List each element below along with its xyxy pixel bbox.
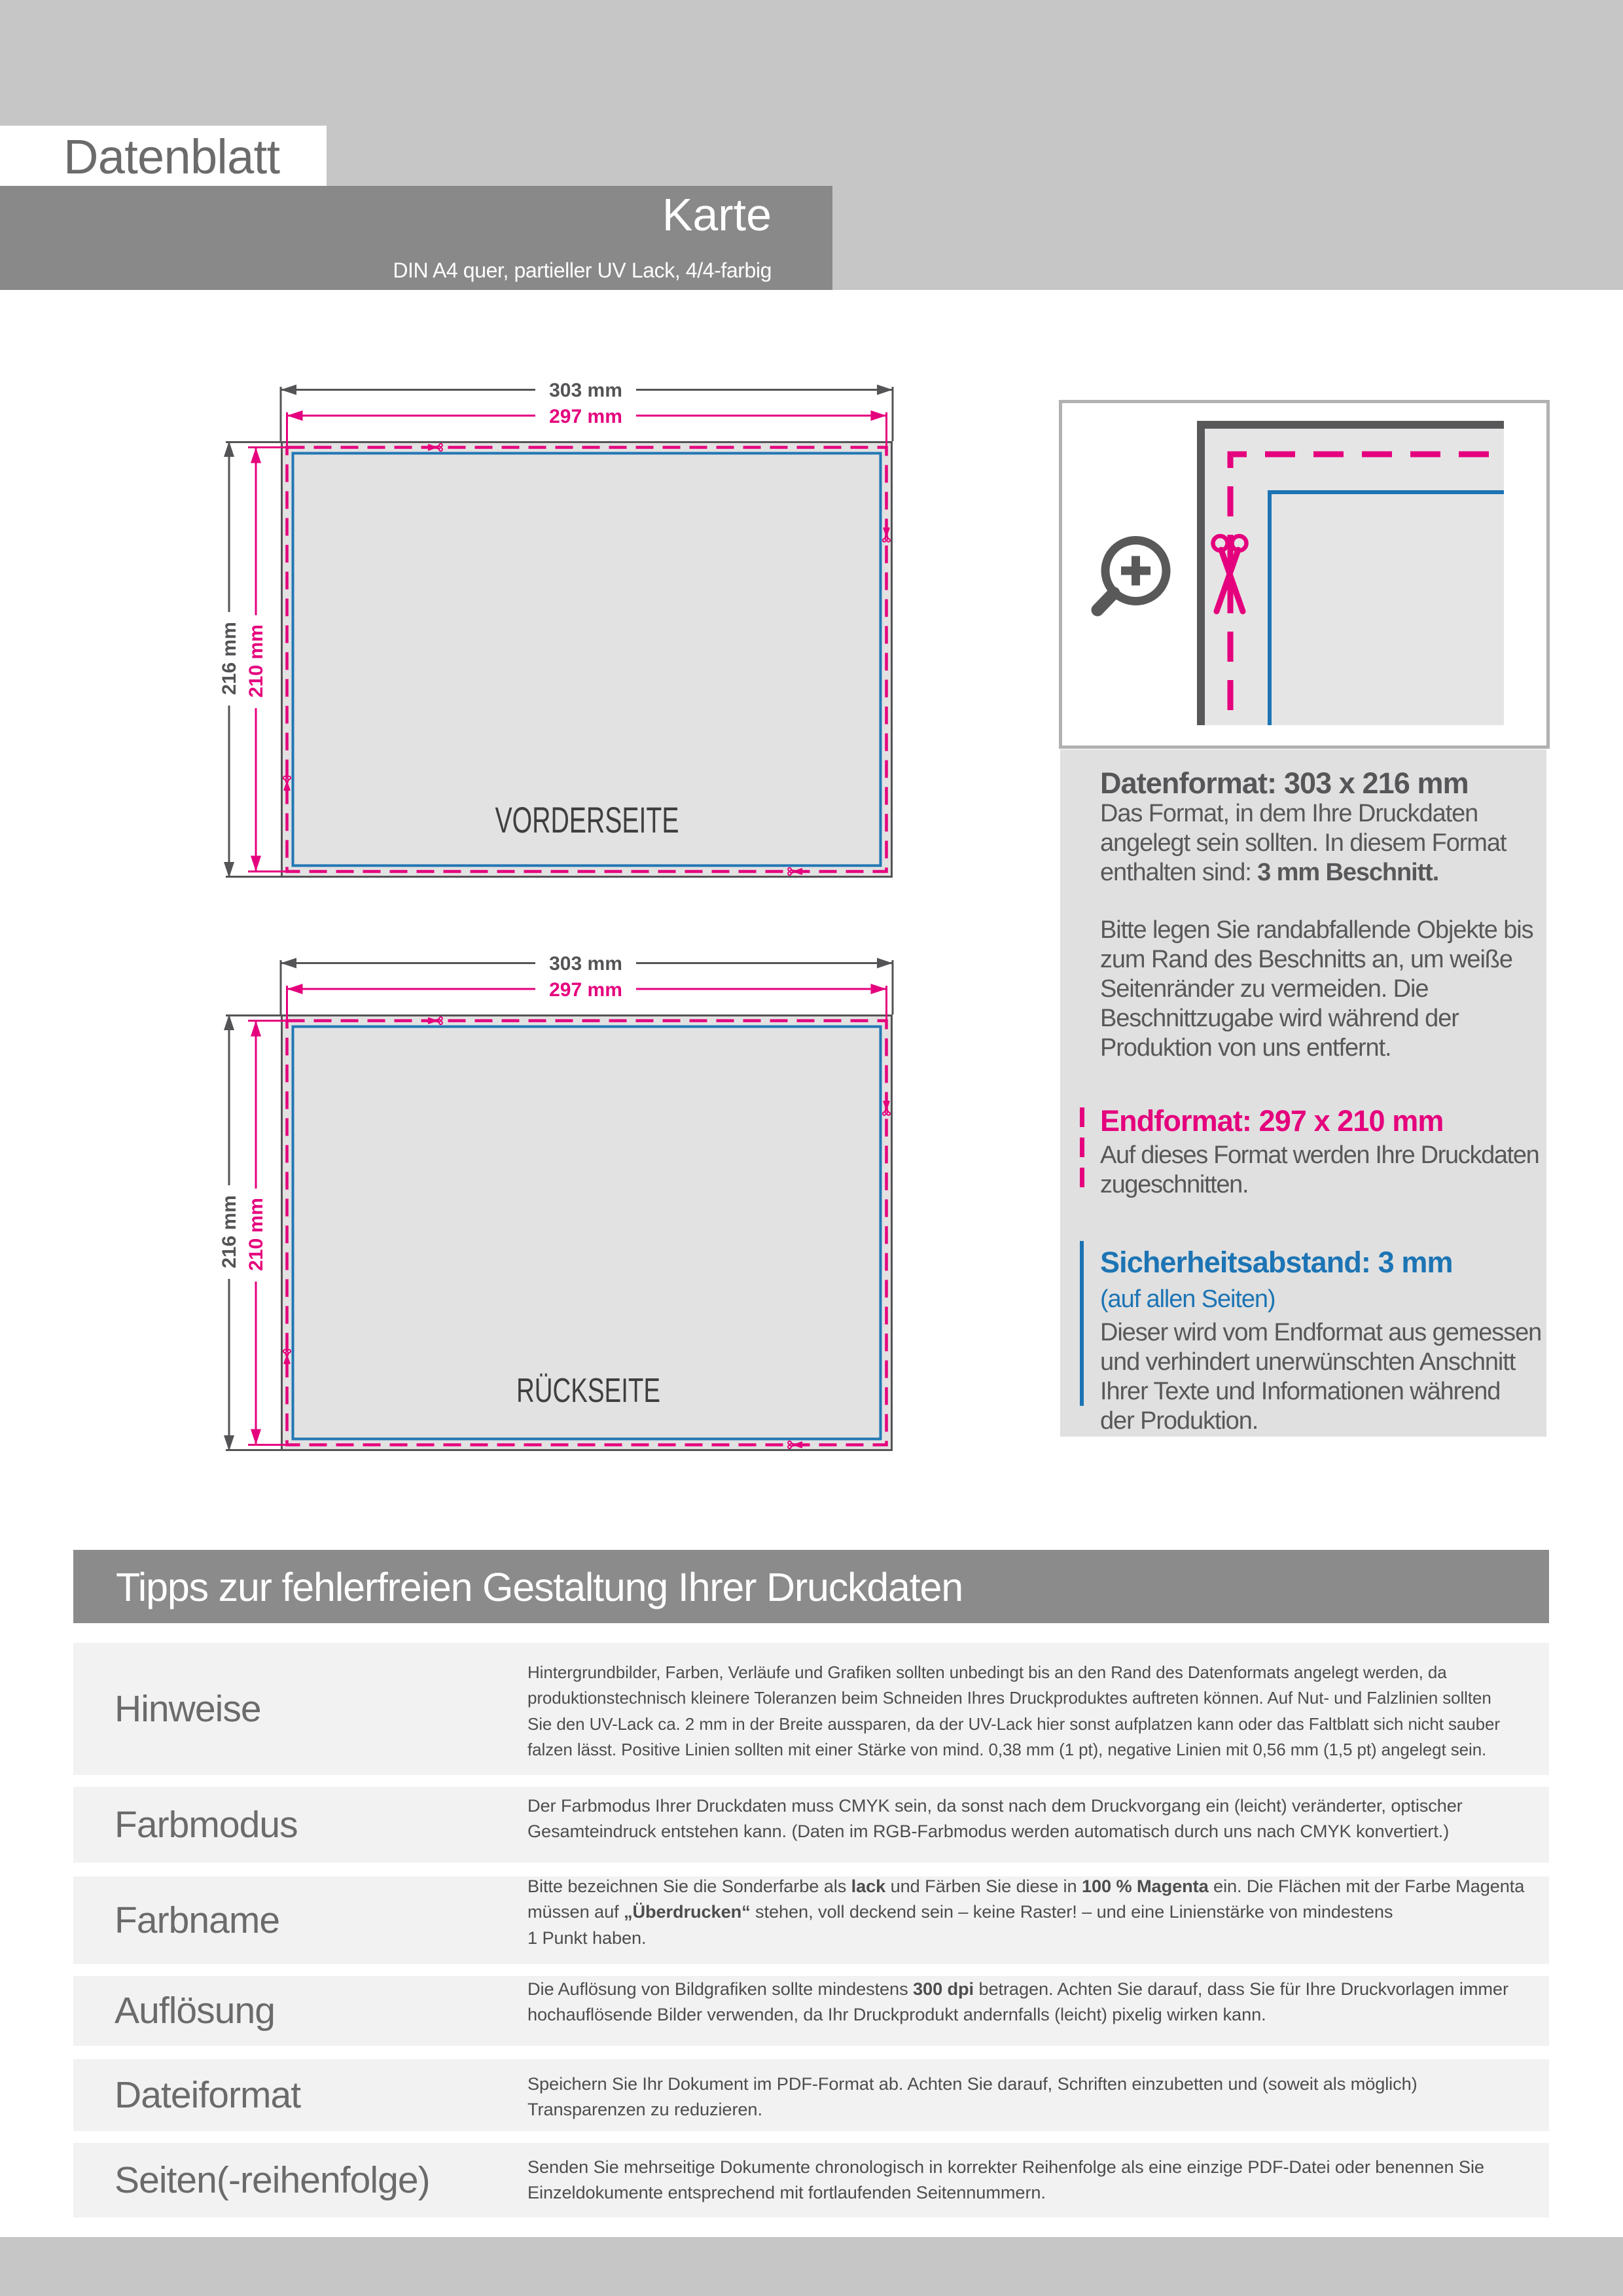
svg-text:210 mm: 210 mm <box>245 624 267 698</box>
svg-text:297 mm: 297 mm <box>549 406 622 427</box>
svg-text:303 mm: 303 mm <box>549 953 622 975</box>
svg-text:RÜCKSEITE: RÜCKSEITE <box>516 1372 660 1410</box>
svg-text:297 mm: 297 mm <box>549 979 622 1001</box>
svg-text:210 mm: 210 mm <box>245 1198 267 1271</box>
svg-text:303 mm: 303 mm <box>549 380 622 401</box>
svg-text:216 mm: 216 mm <box>219 1195 240 1268</box>
svg-text:216 mm: 216 mm <box>219 622 240 695</box>
svg-text:VORDERSEITE: VORDERSEITE <box>495 799 679 840</box>
